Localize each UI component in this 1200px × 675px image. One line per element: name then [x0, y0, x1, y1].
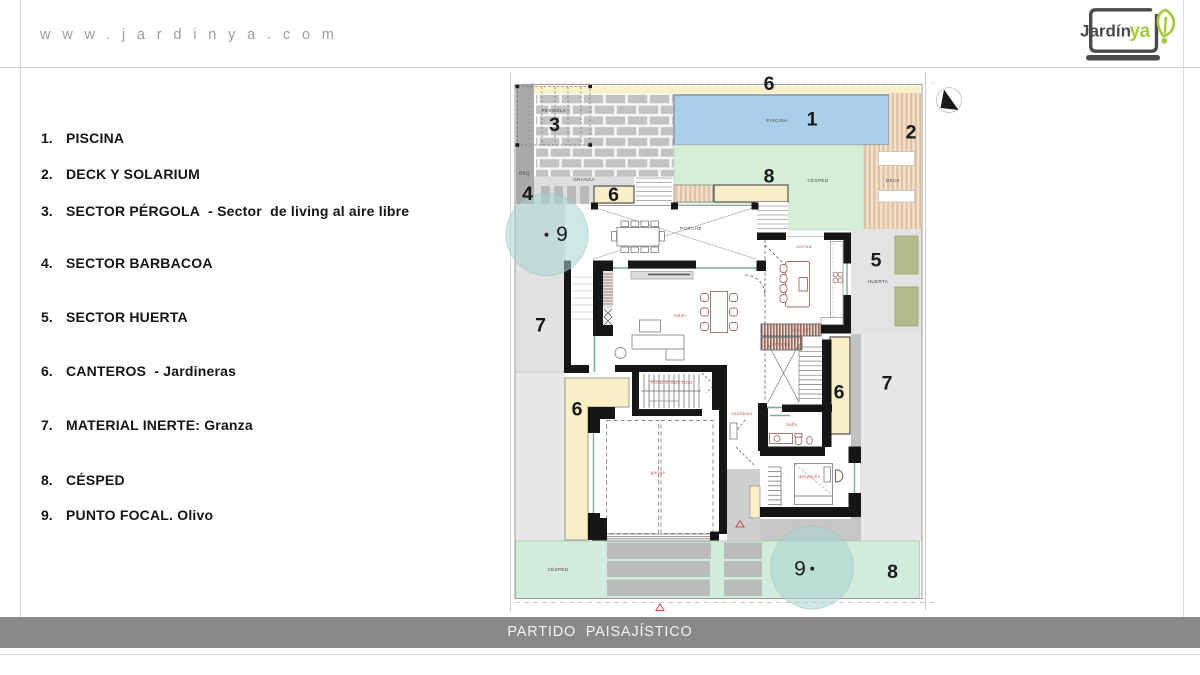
svg-text:salón: salón [674, 313, 687, 318]
svg-text:9: 9 [794, 558, 806, 581]
svg-text:garaje: garaje [651, 470, 666, 475]
svg-text:despacho: despacho [798, 474, 820, 479]
svg-text:CÉSPED: CÉSPED [547, 567, 568, 572]
svg-text:cocina: cocina [796, 244, 811, 249]
svg-text:sube 17: sube 17 [791, 328, 810, 333]
svg-text:1: 1 [807, 109, 818, 131]
svg-text:5: 5 [871, 250, 882, 272]
svg-text:PORCHE: PORCHE [680, 226, 702, 231]
svg-text:6: 6 [608, 184, 619, 206]
svg-text:CÉSPED: CÉSPED [807, 178, 828, 183]
svg-text:FONDO RUSTICO: FONDO RUSTICO [651, 380, 693, 385]
svg-text:PÉRGOLA: PÉRGOLA [542, 108, 567, 113]
svg-text:armario: armario [772, 342, 790, 347]
svg-text:6: 6 [764, 73, 775, 95]
svg-text:7: 7 [535, 315, 546, 337]
svg-text:baño: baño [786, 422, 798, 427]
svg-text:Jardín: Jardín [1080, 22, 1131, 41]
svg-text:PISCINA: PISCINA [766, 118, 787, 123]
svg-text:7: 7 [882, 373, 893, 395]
svg-text:6: 6 [572, 399, 583, 421]
svg-text:9: 9 [556, 223, 568, 246]
svg-text:2: 2 [906, 122, 917, 144]
svg-text:6: 6 [834, 382, 845, 404]
svg-text:ya: ya [1130, 21, 1151, 42]
svg-text:DECK: DECK [886, 178, 900, 183]
svg-text:4: 4 [522, 183, 533, 205]
svg-text:8: 8 [887, 561, 898, 583]
svg-text:3: 3 [549, 114, 560, 136]
svg-text:HUERTA: HUERTA [868, 279, 889, 284]
svg-text:8: 8 [764, 166, 775, 188]
svg-text:GRANZA: GRANZA [573, 177, 594, 182]
svg-text:BBQ: BBQ [519, 171, 530, 176]
svg-text:vestíbulo: vestíbulo [731, 411, 752, 416]
